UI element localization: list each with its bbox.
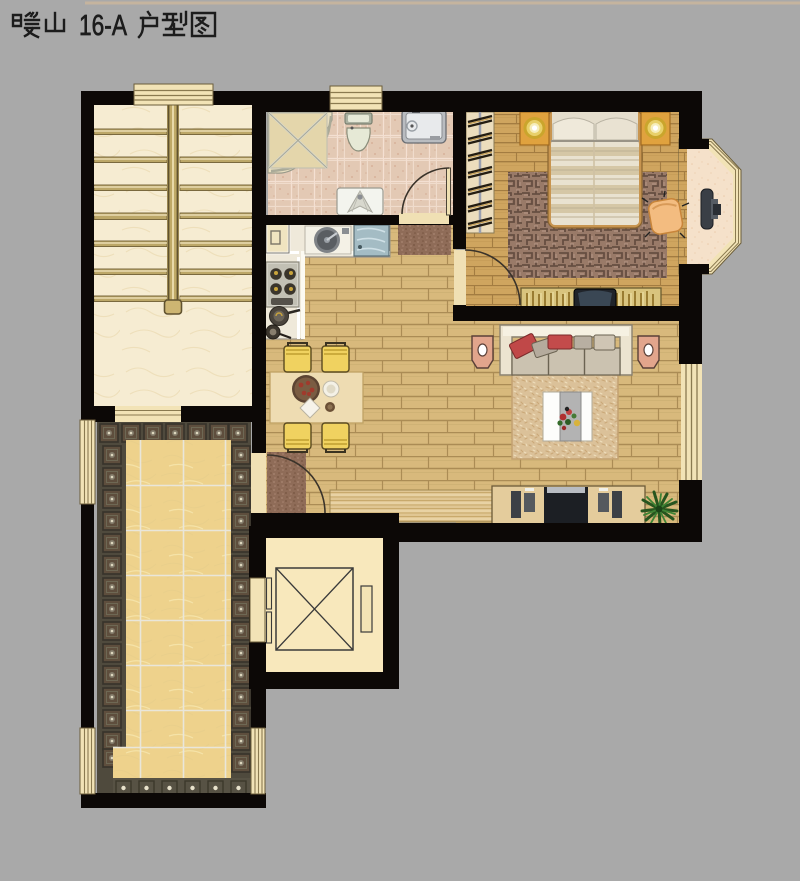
svg-text:16-A: 16-A [79, 10, 128, 42]
